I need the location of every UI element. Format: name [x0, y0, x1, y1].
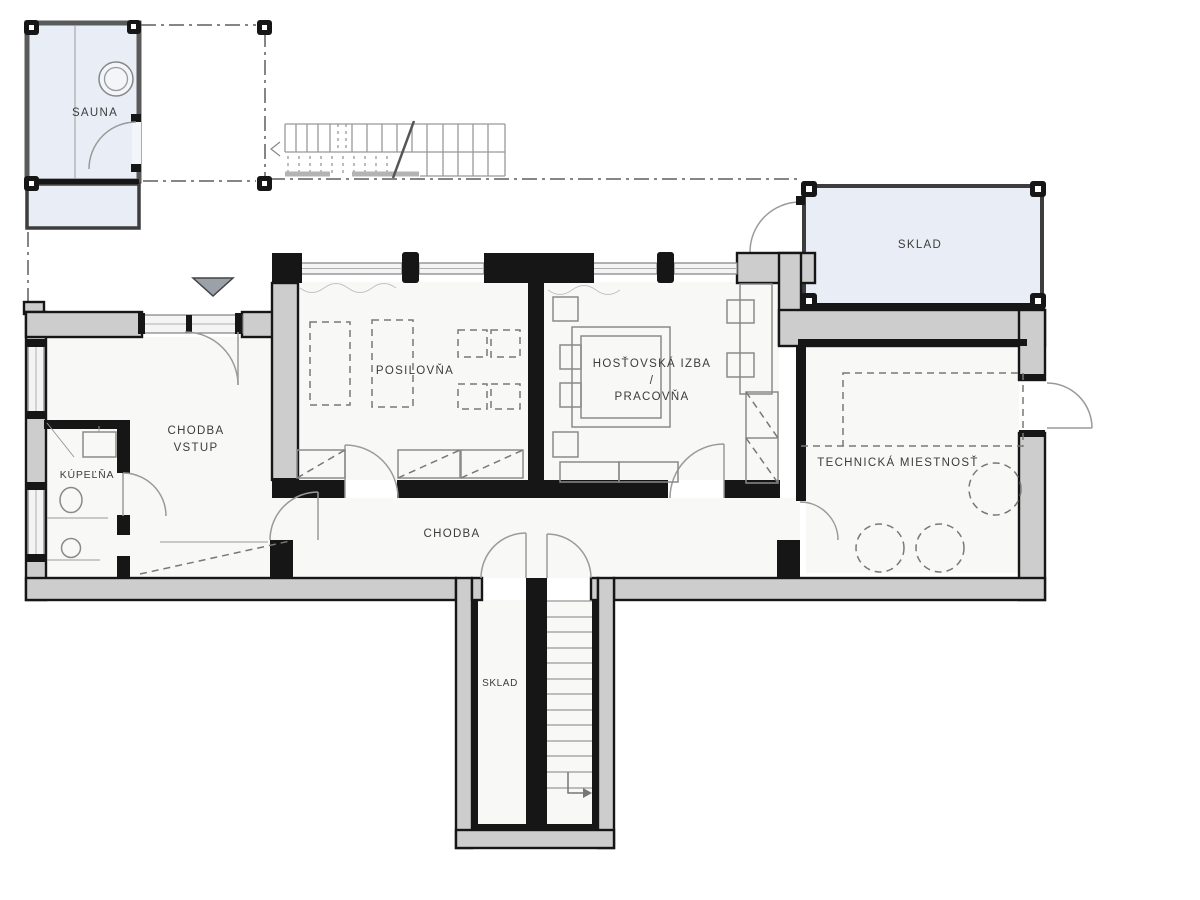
post-icon	[24, 20, 39, 35]
post-icon	[257, 176, 272, 191]
room-label-technical: TECHNICKÁ MIESTNOSŤ	[817, 456, 978, 469]
storage-top-door-arc	[750, 202, 800, 252]
room-label-storage-bottom: SKLAD	[482, 678, 518, 689]
entrance-marker-icon	[193, 278, 233, 296]
post-icon	[1030, 181, 1046, 197]
window-mullion-post	[402, 252, 419, 283]
post-icon	[127, 20, 141, 34]
exterior-stairs-symbol	[271, 121, 505, 178]
floor-plan-canvas: SAUNA SKLAD POSILOVŇA HOSŤOVSKÁ IZBA / P…	[0, 0, 1200, 900]
room-label-guest-line1: HOSŤOVSKÁ IZBA	[593, 357, 712, 370]
floor-plan-drawing: SAUNA SKLAD POSILOVŇA HOSŤOVSKÁ IZBA / P…	[0, 0, 1200, 900]
room-label-gym: POSILOVŇA	[376, 364, 454, 377]
room-sauna	[27, 23, 141, 228]
stair-direction-start-icon	[271, 142, 280, 156]
room-label-guest-separator: /	[650, 375, 655, 387]
window-mullion-post	[657, 252, 674, 283]
room-label-storage-top: SKLAD	[898, 239, 942, 251]
technical-room-exterior-door-arc	[1047, 383, 1092, 428]
room-label-sauna: SAUNA	[72, 107, 118, 119]
room-label-entry-line1: CHODBA	[167, 425, 224, 437]
post-icon	[801, 293, 817, 309]
post-icon	[1030, 293, 1046, 309]
post-icon	[24, 176, 39, 191]
room-label-bathroom: KÚPEĽŇA	[60, 468, 115, 481]
room-label-guest-line2: PRACOVŇA	[615, 390, 690, 403]
room-label-entry-line2: VSTUP	[174, 442, 219, 454]
room-storage-bottom	[477, 600, 526, 826]
post-icon	[801, 181, 817, 197]
post-icon	[257, 20, 272, 35]
room-label-hallway: CHODBA	[423, 528, 480, 540]
